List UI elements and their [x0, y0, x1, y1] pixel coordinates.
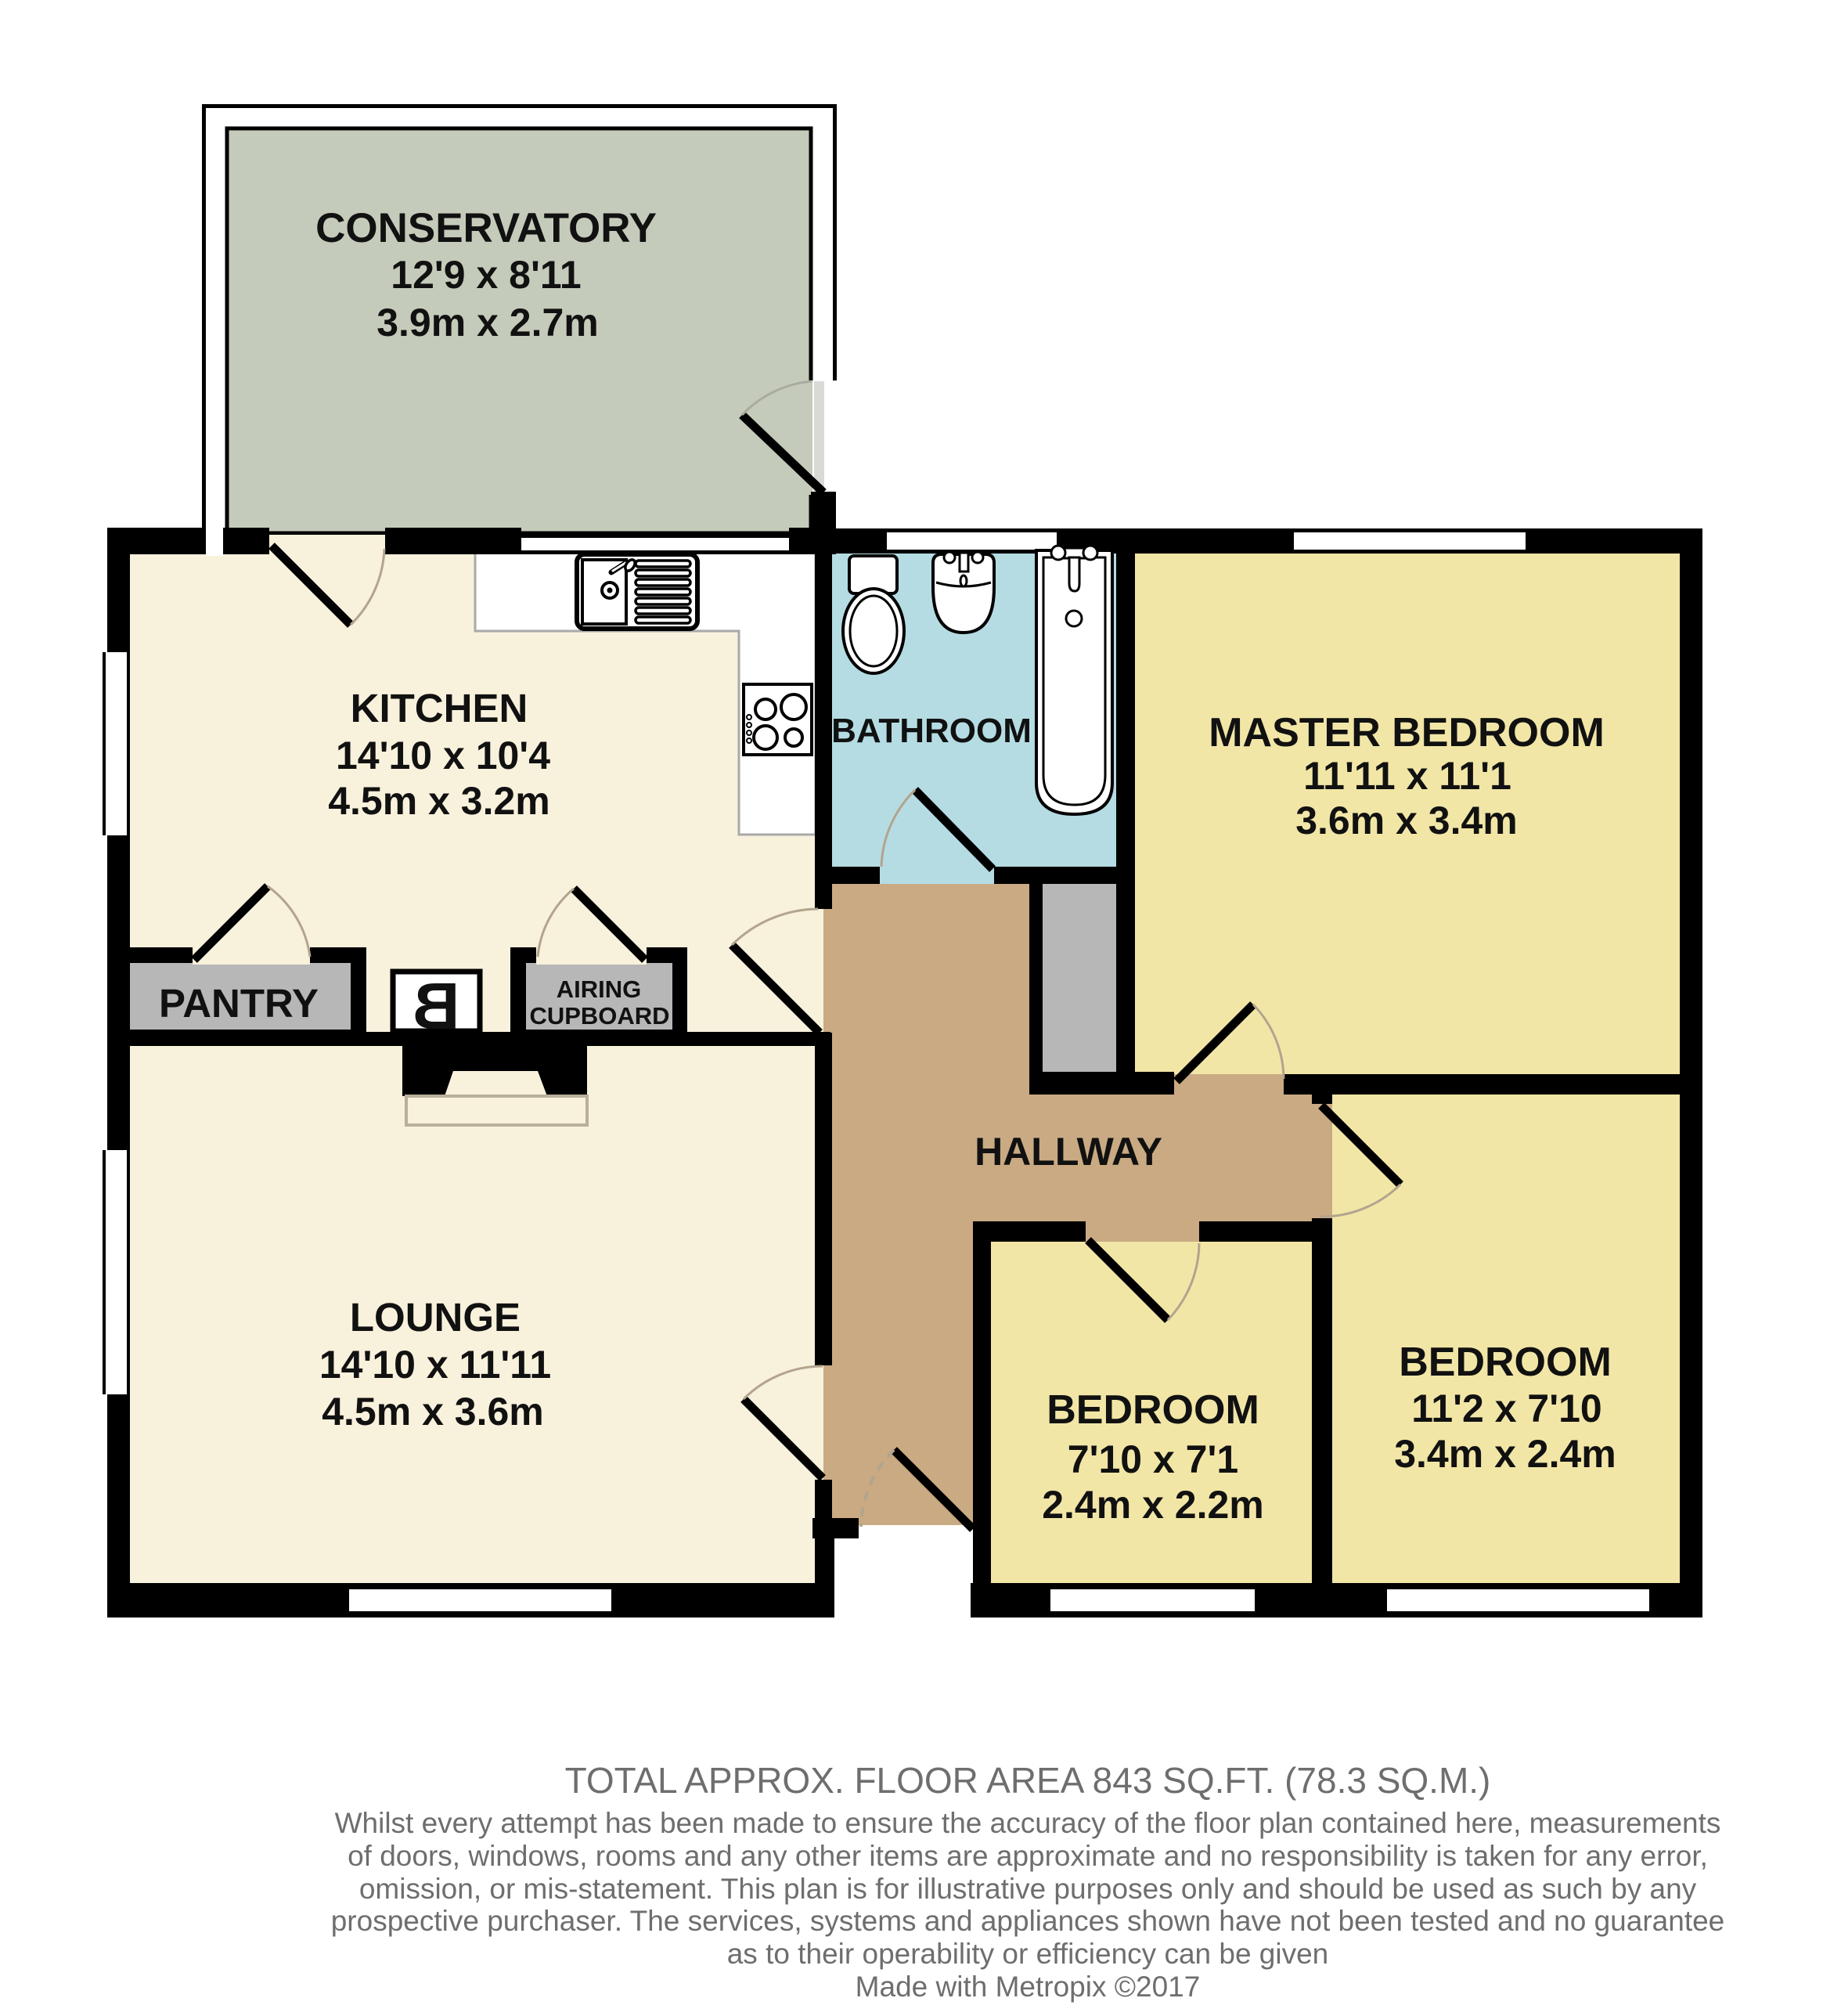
- svg-text:LOUNGE: LOUNGE: [350, 1295, 521, 1340]
- svg-text:BEDROOM: BEDROOM: [1047, 1387, 1259, 1433]
- svg-text:14'10 x 11'11: 14'10 x 11'11: [319, 1343, 551, 1387]
- svg-text:14'10 x 10'4: 14'10 x 10'4: [336, 734, 550, 777]
- svg-text:as to their operability or eff: as to their operability or efficiency ca…: [727, 1938, 1329, 1970]
- svg-text:KITCHEN: KITCHEN: [351, 686, 528, 730]
- svg-text:BEDROOM: BEDROOM: [1399, 1340, 1612, 1385]
- svg-text:Whilst every attempt has been: Whilst every attempt has been made to en…: [335, 1807, 1721, 1839]
- svg-text:3.9m x 2.7m: 3.9m x 2.7m: [376, 301, 599, 344]
- svg-text:11'11 x 11'1: 11'11 x 11'1: [1303, 754, 1511, 798]
- svg-text:CUPBOARD: CUPBOARD: [529, 1002, 669, 1030]
- svg-text:11'2 x 7'10: 11'2 x 7'10: [1411, 1387, 1601, 1430]
- svg-text:B: B: [413, 969, 460, 1043]
- svg-text:4.5m x 3.6m: 4.5m x 3.6m: [322, 1390, 544, 1434]
- svg-text:3.6m x 3.4m: 3.6m x 3.4m: [1295, 799, 1518, 842]
- svg-text:3.4m x 2.4m: 3.4m x 2.4m: [1394, 1432, 1616, 1476]
- svg-text:TOTAL APPROX. FLOOR AREA 843 S: TOTAL APPROX. FLOOR AREA 843 SQ.FT. (78.…: [565, 1760, 1491, 1801]
- svg-text:7'10 x 7'1: 7'10 x 7'1: [1068, 1437, 1238, 1481]
- svg-text:12'9 x 8'11: 12'9 x 8'11: [391, 253, 581, 297]
- svg-text:CONSERVATORY: CONSERVATORY: [315, 205, 657, 251]
- svg-text:of doors, windows, rooms and a: of doors, windows, rooms and any other i…: [348, 1840, 1708, 1872]
- svg-text:PANTRY: PANTRY: [159, 981, 319, 1026]
- svg-text:MASTER BEDROOM: MASTER BEDROOM: [1209, 710, 1605, 756]
- svg-text:HALLWAY: HALLWAY: [975, 1130, 1162, 1174]
- svg-text:BATHROOM: BATHROOM: [831, 712, 1032, 750]
- svg-text:omission, or mis-statement. Th: omission, or mis-statement. This plan is…: [359, 1873, 1697, 1905]
- svg-text:Made with Metropix ©2017: Made with Metropix ©2017: [856, 1971, 1201, 2003]
- svg-text:4.5m x 3.2m: 4.5m x 3.2m: [328, 779, 550, 823]
- svg-text:AIRING: AIRING: [557, 976, 642, 1003]
- svg-text:2.4m x 2.2m: 2.4m x 2.2m: [1042, 1483, 1264, 1527]
- svg-text:prospective purchaser. The ser: prospective purchaser. The services, sys…: [331, 1905, 1725, 1937]
